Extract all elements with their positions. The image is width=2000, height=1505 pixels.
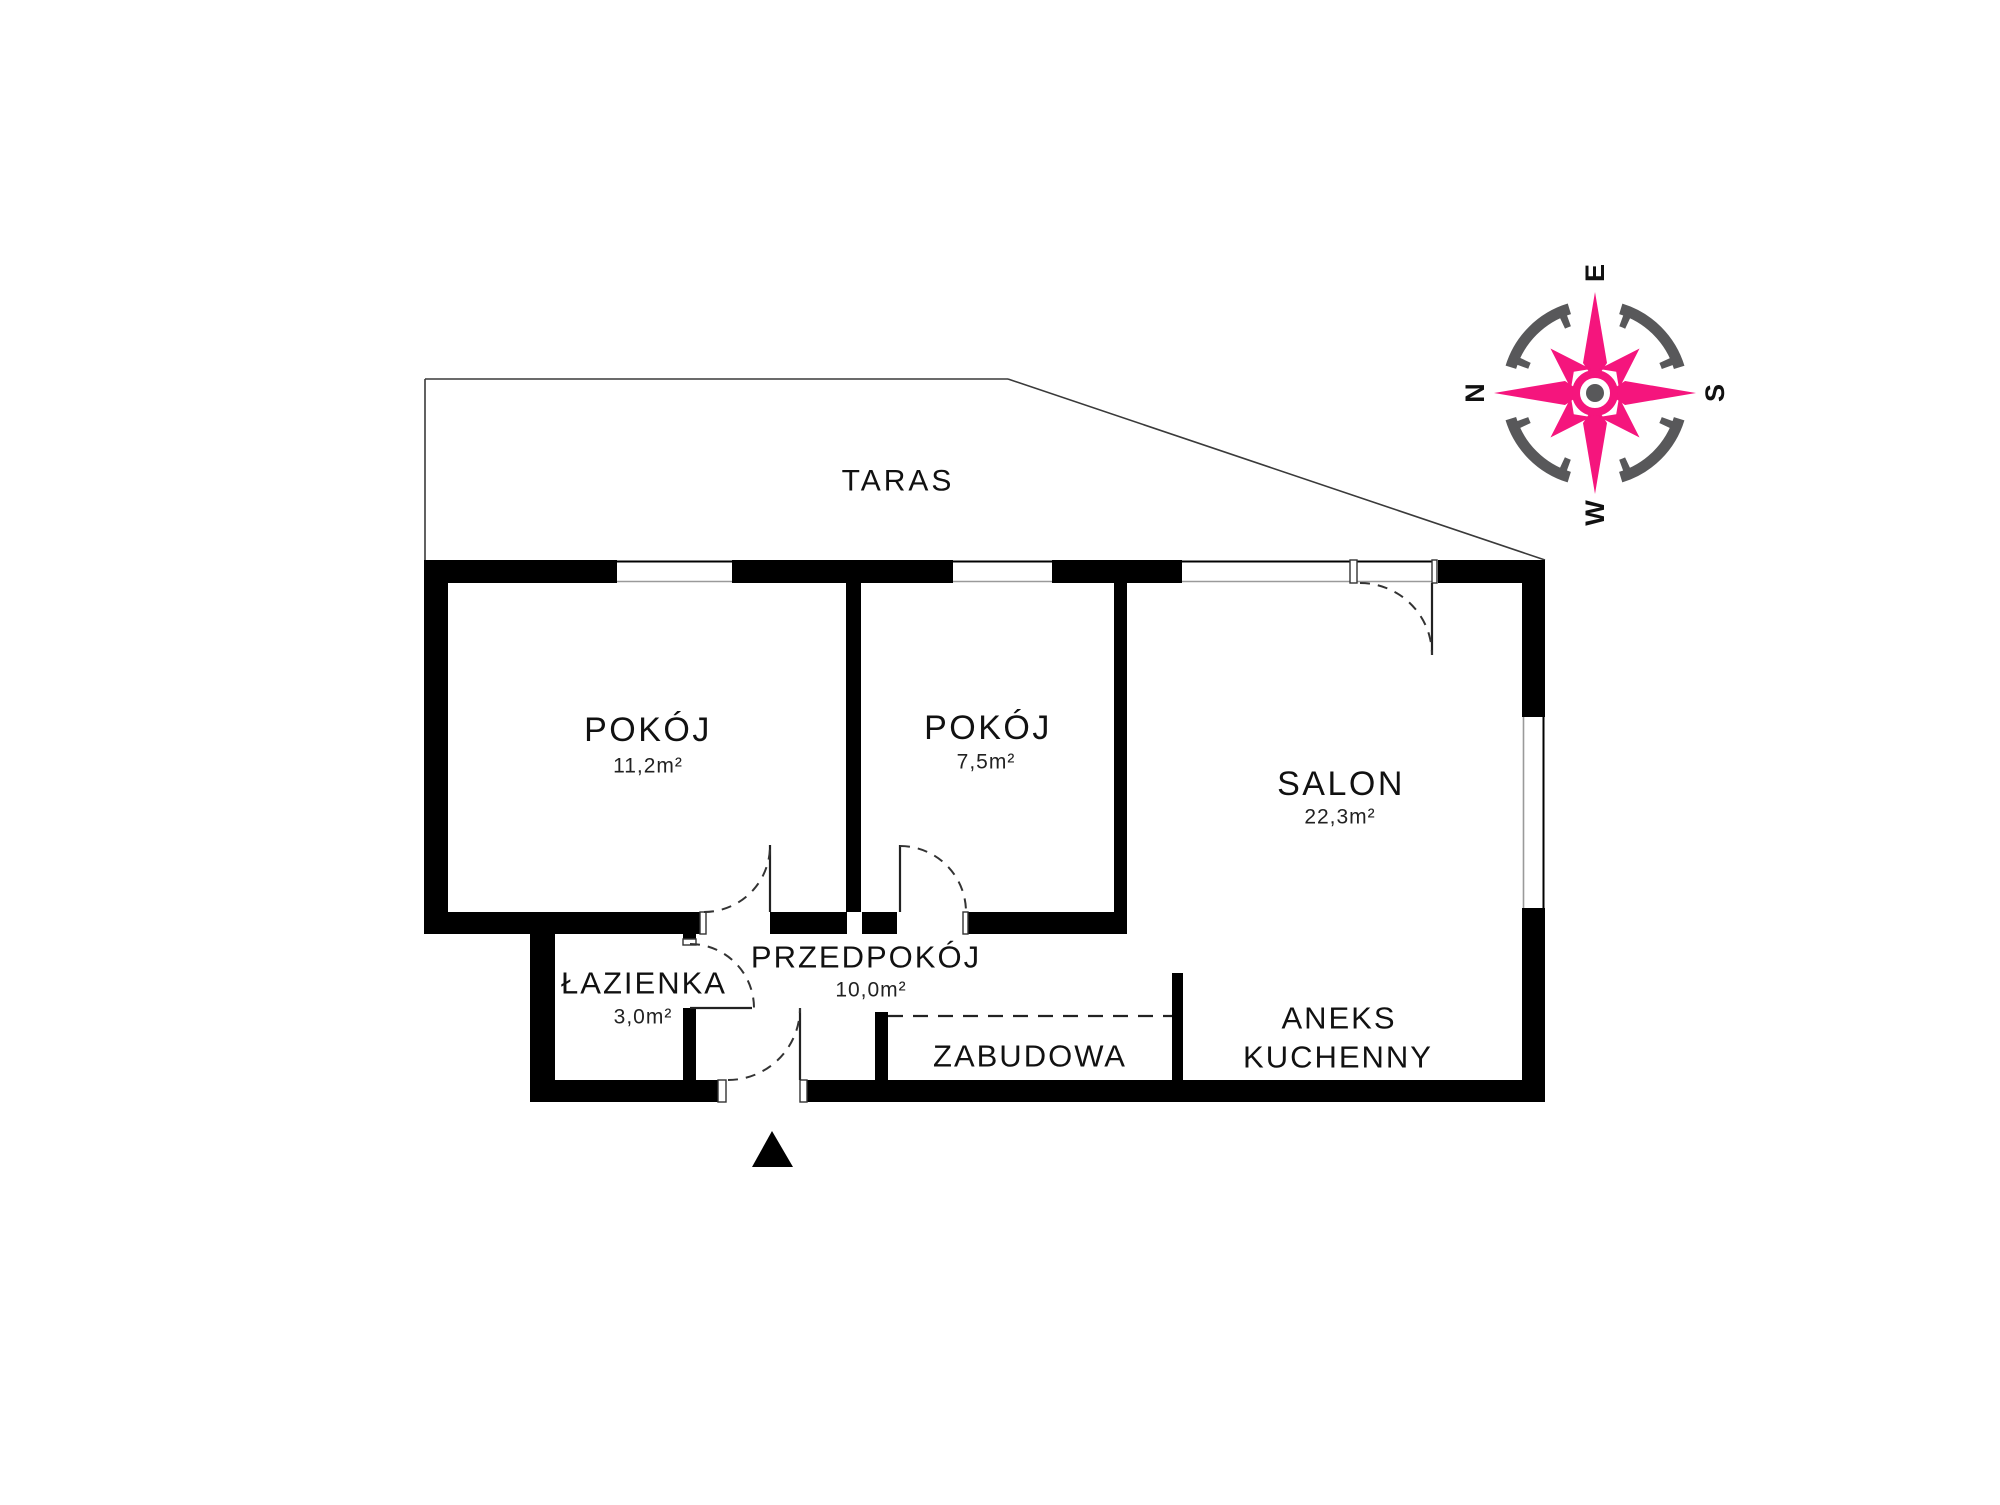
area-label-przedpokoj: 10,0m² [835, 979, 906, 1002]
area-label-salon: 22,3m² [1304, 806, 1375, 829]
wall-left-exterior [424, 560, 448, 934]
entrance-arrow-icon [752, 1131, 793, 1167]
wall-pokoj2-salon [1114, 583, 1127, 934]
compass-rose-icon: E S W N [1460, 264, 1730, 526]
jamb-pokoj2-door [963, 912, 968, 934]
wall-bottom-right [807, 1080, 1545, 1102]
floor-plan-page: TARAS POKÓJ 11,2m² POKÓJ 7,5m² SALON 22,… [0, 0, 2000, 1500]
wall-rooms-bottom-3 [862, 912, 897, 934]
wall-right-lower [1522, 908, 1545, 1102]
jamb-balcony-left [1350, 560, 1357, 583]
floor-plan-drawing: TARAS POKÓJ 11,2m² POKÓJ 7,5m² SALON 22,… [0, 0, 2000, 1500]
door-arc-pokoj2 [900, 846, 966, 912]
compass-letter-w: W [1580, 500, 1610, 526]
jamb-entrance-right [800, 1080, 807, 1102]
windows [617, 562, 1544, 909]
compass-letter-e: E [1580, 264, 1610, 282]
wall-rooms-bottom-2 [770, 912, 847, 934]
door-arc-entrance [728, 1008, 800, 1080]
wall-rooms-bottom-1 [424, 912, 700, 934]
wall-top-segment-2 [732, 560, 953, 583]
wall-top-segment-3 [1052, 560, 1182, 583]
room-label-aneks-line2: KUCHENNY [1243, 1040, 1433, 1075]
door-arc-balcony [1360, 583, 1432, 655]
area-label-pokoj1: 11,2m² [613, 755, 683, 778]
room-label-zabudowa: ZABUDOWA [933, 1039, 1127, 1074]
room-label-przedpokoj: PRZEDPOKÓJ [751, 940, 981, 975]
compass-letter-s: S [1700, 384, 1730, 402]
labels: TARAS POKÓJ 11,2m² POKÓJ 7,5m² SALON 22,… [561, 465, 1433, 1075]
terrace-diagonal-edge [1008, 379, 1545, 560]
jamb-pokoj1-door [700, 912, 706, 934]
area-label-pokoj2: 7,5m² [957, 751, 1016, 774]
wall-top-segment-1 [424, 560, 617, 583]
room-label-salon: SALON [1277, 765, 1405, 803]
wall-lazienka-east-stub [683, 1008, 696, 1080]
area-label-lazienka: 3,0m² [614, 1006, 673, 1029]
wall-zabudowa-right-stub [1172, 973, 1183, 1080]
compass-letter-n: N [1460, 383, 1490, 403]
jamb-entrance-left [718, 1080, 726, 1102]
room-label-aneks-line1: ANEKS [1281, 1001, 1396, 1036]
wall-between-rooms [846, 583, 861, 912]
wall-right-upper [1522, 560, 1545, 717]
door-arc-pokoj1 [704, 846, 770, 912]
wall-zabudowa-left-stub [875, 1012, 888, 1080]
jamb-balcony-right [1432, 560, 1437, 583]
wall-bottom-left [530, 1080, 718, 1102]
wall-lazienka-west [530, 934, 555, 1080]
room-label-pokoj2: POKÓJ [924, 709, 1052, 747]
terrace-outline [425, 379, 1545, 560]
room-label-pokoj1: POKÓJ [584, 711, 712, 749]
compass-hub-dot [1586, 384, 1604, 402]
room-label-lazienka: ŁAZIENKA [561, 966, 727, 1001]
wall-rooms-bottom-4 [968, 912, 1127, 934]
terrace-label: TARAS [842, 465, 955, 498]
